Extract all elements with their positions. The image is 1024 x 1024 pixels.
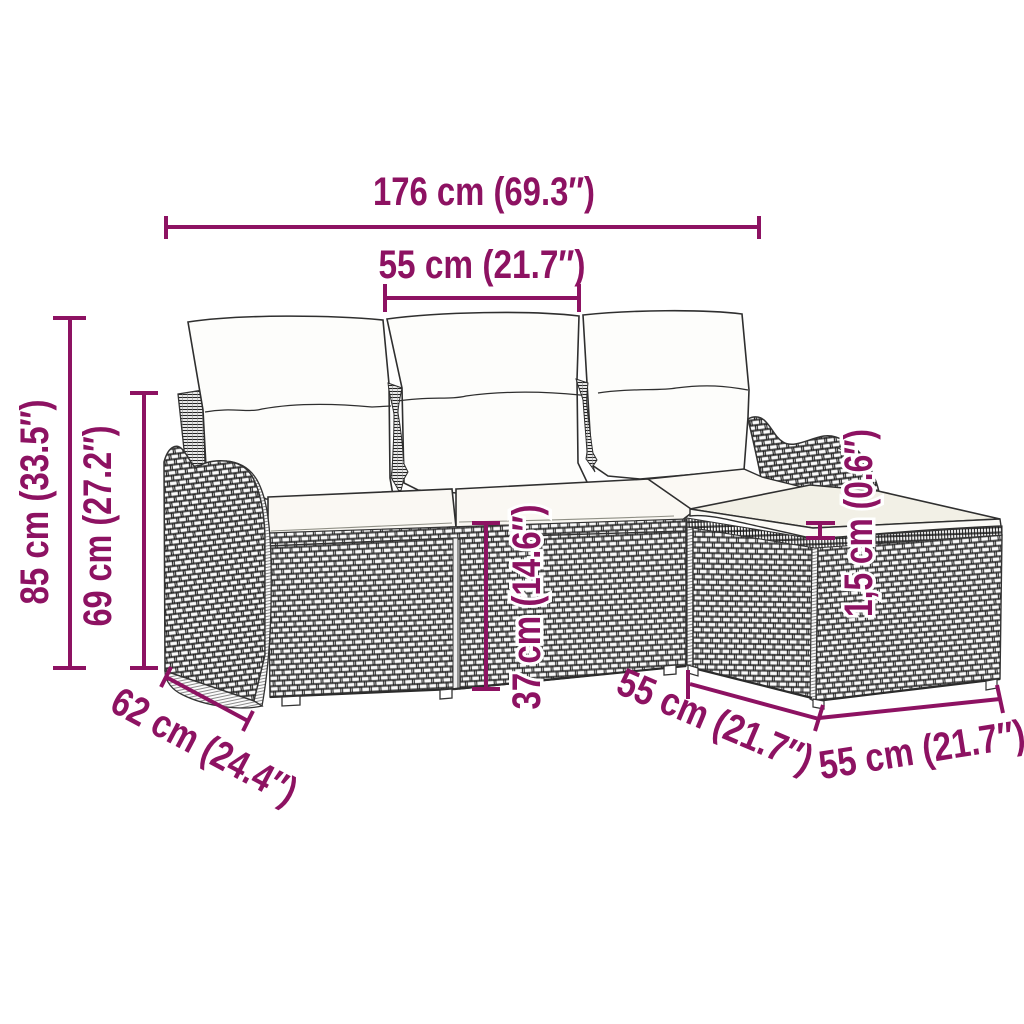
svg-text:1,5 cm (0.6″): 1,5 cm (0.6″) bbox=[837, 429, 881, 617]
svg-text:176 cm (69.3″): 176 cm (69.3″) bbox=[373, 170, 595, 214]
svg-text:37 cm (14.6″): 37 cm (14.6″) bbox=[505, 505, 549, 710]
svg-text:85 cm (33.5″): 85 cm (33.5″) bbox=[13, 400, 57, 605]
svg-text:55 cm (21.7″): 55 cm (21.7″) bbox=[379, 243, 586, 287]
svg-text:69 cm (27.2″): 69 cm (27.2″) bbox=[76, 426, 120, 627]
